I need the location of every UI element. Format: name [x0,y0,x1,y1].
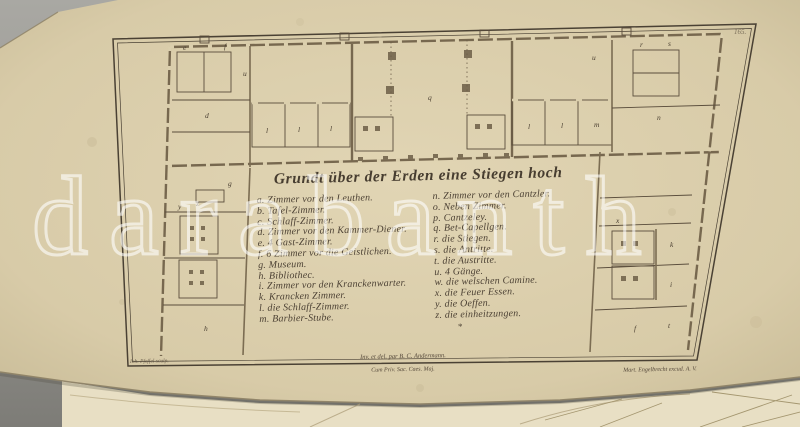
credit-left: Ioh. Pfeffel sculp. [129,357,169,365]
room-label: n [657,113,661,122]
room-label: l [528,122,530,131]
room-label: u [243,69,247,78]
room-label: r [640,40,643,49]
room-label: x [615,216,620,225]
room-label: m [594,120,600,129]
room-label: s [668,39,671,48]
photo-of-antique-floorplan-engraving: 165. [0,0,800,427]
room-label: z [195,199,199,208]
room-label: y [177,202,182,211]
room-label: d [205,111,209,120]
room-label: u [592,53,596,62]
room-label: i [670,280,672,289]
room-label: h [204,324,208,333]
room-label: l [266,126,268,135]
room-label: l [561,121,563,130]
pier [388,52,396,60]
pier [386,86,394,94]
room-label: l [330,124,332,133]
plate-number: 165. [734,28,747,36]
room-label: q [428,93,432,102]
room-label: l [298,125,300,134]
room-label: g [228,179,232,188]
pier [464,50,472,58]
photo-scene: 165. [0,0,800,427]
pier [462,84,470,92]
